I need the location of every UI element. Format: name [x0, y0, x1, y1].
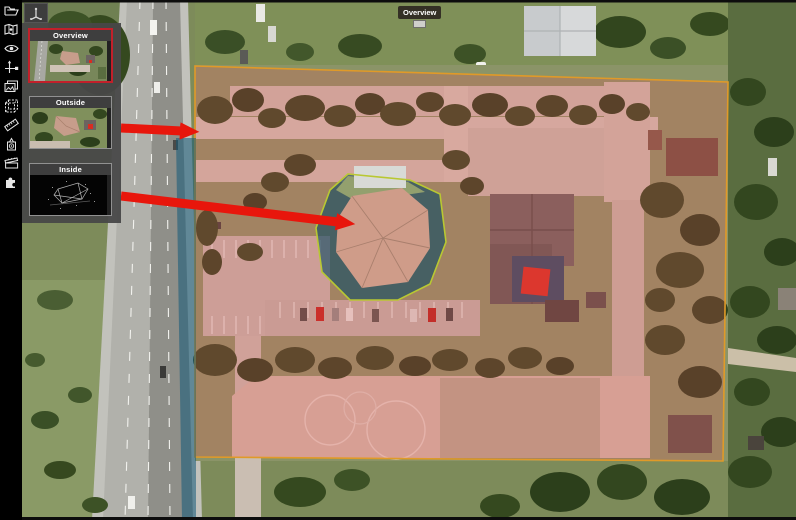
viewpoint-outside-label: Outside — [30, 97, 111, 108]
property-overlay — [195, 66, 728, 461]
application-window: Overview Outside — [0, 0, 796, 520]
puzzle-icon[interactable] — [1, 174, 21, 189]
instrument-icon[interactable] — [1, 136, 21, 151]
viewpoint-overview-thumbnail — [30, 41, 111, 81]
viewpoint-outside-thumbnail — [30, 108, 111, 148]
map-viewport[interactable] — [22, 0, 796, 520]
measure-icon[interactable] — [1, 117, 21, 132]
arrow-outside — [121, 128, 182, 131]
map-icon[interactable] — [1, 22, 21, 37]
cube-icon[interactable] — [1, 98, 21, 113]
map-viewpoint-marker-icon[interactable] — [413, 20, 426, 28]
map-viewpoint-marker: Overview — [398, 6, 441, 28]
aerial-map — [22, 0, 796, 520]
viewpoint-overview[interactable]: Overview — [30, 30, 111, 81]
east-neighborhood — [728, 0, 796, 520]
viewpoint-outside[interactable]: Outside — [30, 97, 111, 148]
viewpoint-panel: Overview Outside — [22, 23, 121, 223]
gray-roof-building — [524, 6, 596, 56]
left-toolbar — [0, 0, 22, 520]
eye-icon[interactable] — [1, 41, 21, 56]
viewpoint-overview-label: Overview — [30, 30, 111, 41]
map-viewpoint-marker-label[interactable]: Overview — [398, 6, 441, 19]
clapperboard-icon[interactable] — [1, 155, 21, 170]
axes-gizmo-icon — [29, 7, 43, 20]
viewpoint-inside[interactable]: Inside — [30, 164, 111, 215]
axes-gizmo-button[interactable] — [24, 3, 48, 23]
move-axes-icon[interactable] — [1, 60, 21, 75]
open-folder-icon[interactable] — [1, 3, 21, 18]
images-icon[interactable] — [1, 79, 21, 94]
viewpoint-inside-thumbnail — [30, 175, 111, 215]
viewpoint-inside-label: Inside — [30, 164, 111, 175]
north-strip — [195, 0, 796, 76]
